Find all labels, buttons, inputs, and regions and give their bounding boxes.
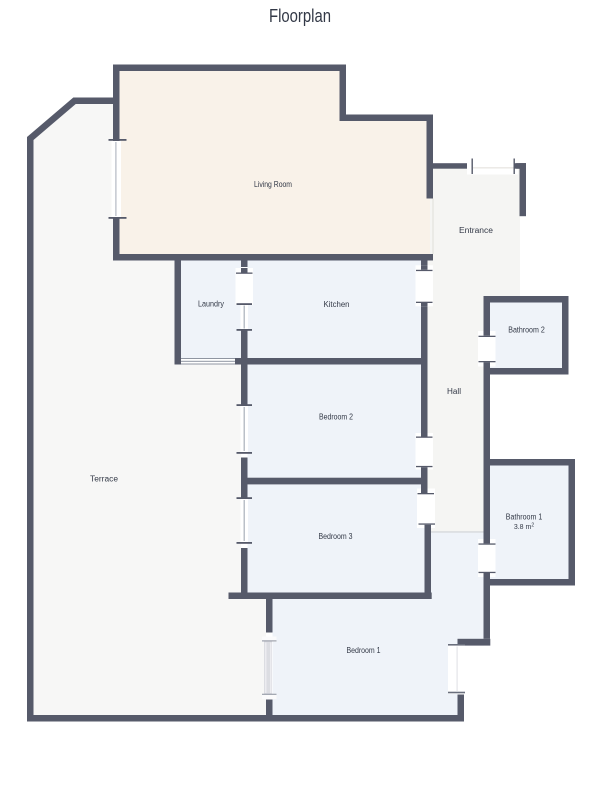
- svg-text:Entrance: Entrance: [459, 226, 494, 235]
- svg-text:Floorplan: Floorplan: [269, 6, 331, 26]
- svg-text:Bathroom 1: Bathroom 1: [506, 513, 543, 522]
- svg-text:3.8 m2: 3.8 m2: [514, 523, 535, 532]
- svg-text:Terrace: Terrace: [90, 475, 119, 484]
- svg-text:Bedroom 2: Bedroom 2: [319, 413, 353, 422]
- svg-text:Bathroom 2: Bathroom 2: [508, 326, 545, 335]
- svg-text:Living Room: Living Room: [254, 180, 292, 189]
- svg-text:Bedroom 3: Bedroom 3: [319, 532, 353, 541]
- svg-text:Hall: Hall: [447, 387, 461, 396]
- svg-text:Kitchen: Kitchen: [324, 300, 350, 309]
- svg-text:Bedroom 1: Bedroom 1: [347, 646, 381, 655]
- svg-text:Laundry: Laundry: [198, 300, 224, 309]
